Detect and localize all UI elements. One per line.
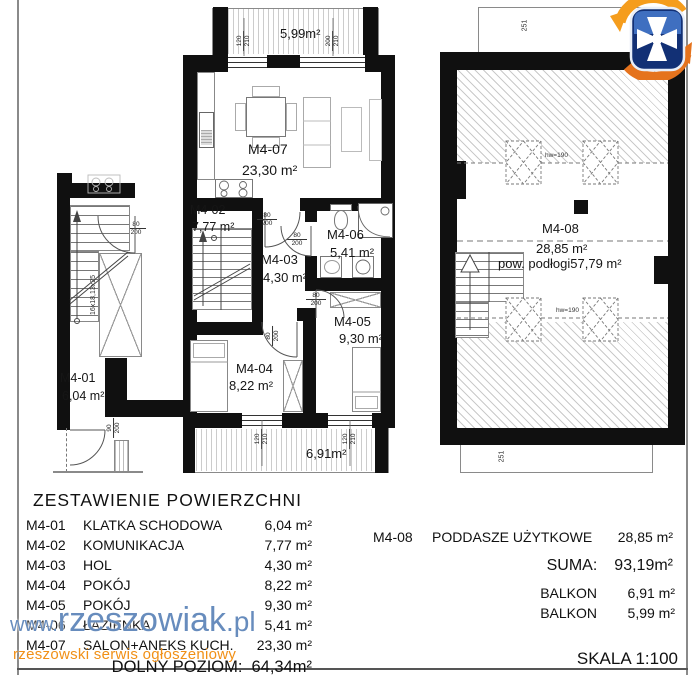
dim-width: 200 (325, 36, 332, 47)
room-code: M4-07 (248, 141, 288, 157)
wall-pilaster (452, 161, 466, 199)
balkon-row: BALKON 6,91 m² (373, 585, 675, 601)
watermark-tagline: rzeszowski serwis ogłoszeniowy (13, 646, 236, 663)
scale-label: SKALA 1:100 (560, 649, 678, 669)
roof-dim-top: 251 (521, 20, 528, 32)
room-area: 6,04 m² (62, 389, 104, 403)
row-area: 7,77 m² (265, 537, 312, 553)
rzeszowiak-logo (606, 0, 692, 80)
table-row: M4-03 HOL 4,30 m² (26, 555, 312, 575)
dim-width: 120 (254, 434, 261, 445)
dim-width: 80 (293, 232, 300, 239)
room-code: M4-08 (542, 221, 579, 236)
dim-height: 200 (274, 331, 281, 342)
total-value: 64,34m² (251, 658, 312, 675)
window (228, 57, 267, 68)
wall (363, 7, 378, 55)
wall (297, 308, 316, 321)
room-code: M4-02 (190, 203, 225, 217)
row-area: 5,41 m² (265, 617, 312, 633)
wardrobe (283, 360, 303, 412)
row-name: HOL (83, 557, 265, 573)
stairs-m402 (192, 228, 252, 310)
room-area: 28,85 m² (536, 241, 587, 256)
wall (183, 413, 242, 428)
room-area: 23,30 m² (242, 162, 297, 178)
dashed-threshold (66, 428, 67, 472)
watermark-tld: .pl (226, 606, 256, 638)
window-dim: 120210 (254, 429, 270, 449)
balcony-top-area-label: 5,99m² (280, 26, 320, 41)
chair (286, 103, 297, 131)
stair-void (99, 253, 142, 357)
door-dim: 90200 (106, 418, 122, 438)
balkon-label: BALKON (540, 605, 597, 621)
table-row: M4-01 KLATKA SCHODOWA 6,04 m² (26, 515, 312, 535)
window-dim: 120210 (342, 429, 358, 449)
wall (305, 278, 381, 291)
row-area: 6,04 m² (265, 517, 312, 533)
stair-note-text: 16x18,13x25 (90, 275, 97, 315)
row-area: 8,22 m² (265, 577, 312, 593)
row-name: POKÓJ (83, 577, 265, 593)
wall (105, 358, 127, 400)
dim-width: 80 (265, 332, 272, 339)
stairs-m401 (70, 205, 130, 251)
dim-height: 210 (351, 434, 358, 445)
dim-width: 120 (342, 434, 349, 445)
stair-note: 16x18,13x25 (90, 264, 100, 326)
window (300, 57, 365, 68)
balkon-label: BALKON (540, 585, 597, 601)
window-dim: 120210 (236, 31, 252, 51)
bed-pillow (193, 343, 225, 358)
wall (183, 322, 252, 335)
wall (267, 55, 300, 68)
room-code: M4-03 (261, 252, 298, 267)
row-area: 4,30 m² (265, 557, 312, 573)
door-dim: 80200 (306, 292, 326, 308)
suma-label: SUMA: (547, 557, 598, 575)
window (242, 415, 282, 426)
wall (183, 428, 195, 473)
chair (252, 86, 280, 97)
dim-width: 120 (236, 36, 243, 47)
suma-value: 93,19m² (614, 557, 673, 575)
table-row: M4-04 POKÓJ 8,22 m² (26, 575, 312, 595)
watermark-url: www.rzeszowiak.pl (10, 601, 256, 640)
row-area: 9,30 m² (265, 597, 312, 613)
wall (305, 211, 317, 222)
dim-height: 200 (262, 220, 273, 227)
roof-dim-bottom: 251 (498, 451, 505, 463)
window (328, 415, 372, 426)
watermark-brand: rzeszowiak (58, 601, 226, 640)
dim-width: 90 (106, 424, 113, 431)
attic-summary-row: M4-08 PODDASZE UŻYTKOWE 28,85 m² (373, 529, 673, 545)
balcony-bottom-area-label: 6,91m² (306, 446, 346, 461)
stove (215, 179, 253, 198)
wall (105, 400, 185, 417)
dim-height: 210 (263, 434, 270, 445)
row-area: 28,85 m² (618, 529, 673, 545)
tv-bench (369, 99, 382, 161)
stairwell-bottom-line (53, 471, 143, 473)
chair (235, 103, 246, 131)
hw-label: hw=190 (556, 307, 579, 314)
hw-text: hw=190 (556, 307, 579, 314)
room-area: 8,22 m² (229, 378, 273, 393)
door-dim: 80200 (257, 212, 277, 228)
wall (252, 211, 263, 335)
sheet-frame-left (17, 0, 19, 675)
row-code: M4-01 (26, 517, 83, 533)
hw-text: hw=190 (545, 152, 568, 159)
chimney (574, 200, 588, 214)
kitchen-sink-basin (201, 130, 212, 145)
dim-width: 80 (263, 212, 270, 219)
attic-hatch-upper (457, 70, 668, 163)
wall (381, 55, 395, 428)
sheet-frame-right (686, 0, 688, 675)
window-dim: 200210 (325, 31, 341, 51)
dim-height: 210 (245, 36, 252, 47)
room-code: M4-05 (334, 314, 371, 329)
row-code: M4-04 (26, 577, 83, 593)
dim-width: 80 (312, 292, 319, 299)
row-code: M4-03 (26, 557, 83, 573)
room-area: 7,77 m² (192, 220, 234, 234)
coffee-table (341, 107, 362, 152)
dim-height: 200 (115, 423, 122, 434)
table-row: M4-02 KOMUNIKACJA 7,77 m² (26, 535, 312, 555)
floor-area-note: pow. podłogi57,79 m² (498, 256, 622, 271)
row-area: 23,30 m² (257, 637, 312, 653)
bed-pillow (355, 396, 378, 409)
balkon-row: BALKON 5,99 m² (373, 605, 675, 621)
door-arc (70, 430, 105, 465)
suma-row: SUMA: 93,19m² (373, 557, 673, 575)
door-dim: 80200 (265, 326, 281, 346)
row-name: KOMUNIKACJA (83, 537, 265, 553)
floor-plan-sheet: 5,99m² 6,91m² (0, 0, 695, 675)
sofa (303, 97, 331, 168)
dining-table (246, 97, 286, 137)
wardrobe (330, 292, 381, 308)
dim-height: 200 (131, 229, 142, 236)
hw-label: hw=190 (545, 152, 568, 159)
row-code: M4-02 (26, 537, 83, 553)
room-code: M4-01 (60, 371, 95, 385)
row-code: M4-08 (373, 529, 432, 545)
watermark-www: www. (10, 614, 58, 637)
dim-height: 210 (334, 36, 341, 47)
wall (440, 52, 457, 445)
wall (303, 318, 316, 428)
wall (57, 173, 72, 183)
logo-cross-center (653, 35, 661, 43)
wall (372, 413, 395, 428)
wall (213, 7, 228, 55)
row-name: PODDASZE UŻYTKOWE (432, 529, 592, 545)
summary-title: ZESTAWIENIE POWIERZCHNI (33, 490, 312, 511)
wall (668, 52, 685, 445)
wall (375, 428, 388, 473)
room-area: 9,30 m² (339, 331, 383, 346)
washbasin-bowl (324, 260, 340, 274)
wall-pilaster (654, 256, 668, 284)
dim-height: 200 (292, 240, 303, 247)
row-name: KLATKA SCHODOWA (83, 517, 265, 533)
roof-outline-bottom (460, 445, 653, 473)
dim-width: 80 (132, 221, 139, 228)
room-code: M4-06 (327, 227, 364, 242)
balkon-value: 5,99 m² (597, 605, 675, 621)
dim-height: 200 (311, 300, 322, 307)
stairs-m408 (455, 302, 489, 338)
wall (440, 428, 685, 445)
wall-section-hatch (114, 440, 129, 473)
room-area: 4,30 m² (263, 270, 307, 285)
room-area: 5,41 m² (330, 245, 374, 260)
door-dim: 80200 (287, 232, 307, 248)
balkon-value: 6,91 m² (597, 585, 675, 601)
room-code: M4-04 (236, 361, 273, 376)
